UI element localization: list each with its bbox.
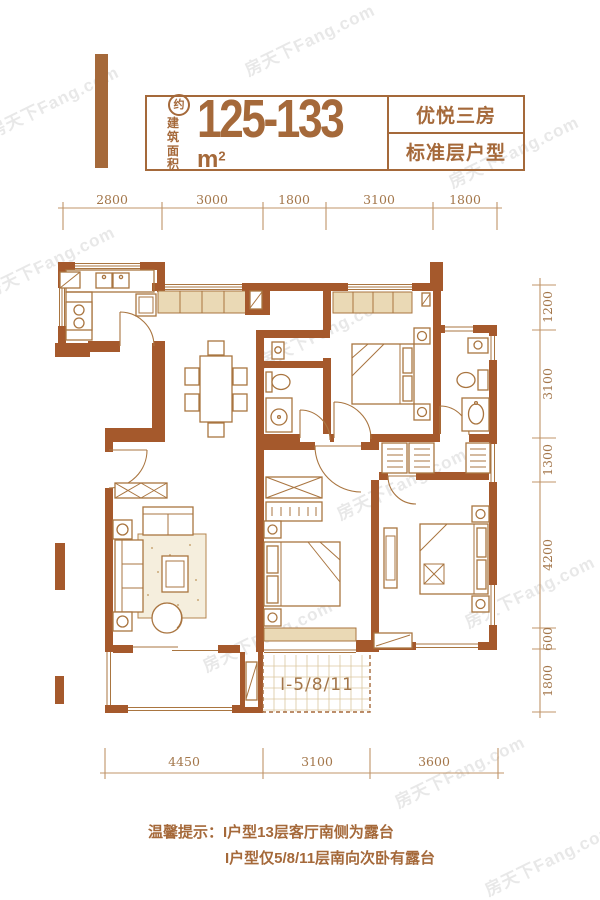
chair [185, 368, 199, 385]
middle-bedroom [264, 477, 356, 641]
right-bedroom [382, 443, 490, 612]
wardrobe [266, 502, 322, 521]
svg-text:4450: 4450 [168, 754, 200, 769]
svg-text:3100: 3100 [540, 368, 555, 400]
master-bedroom-door [334, 402, 371, 439]
svg-text:3100: 3100 [363, 192, 395, 207]
sofa-three-seat [115, 540, 143, 612]
vanity [462, 398, 489, 431]
nightstand [472, 596, 489, 612]
svg-text:3600: 3600 [418, 754, 450, 769]
svg-text:600: 600 [540, 627, 555, 651]
nightstand [414, 328, 430, 344]
bay-window-sill [264, 628, 356, 641]
nightstand [414, 404, 430, 420]
laundry-basin [272, 342, 284, 359]
svg-text:3000: 3000 [196, 192, 228, 207]
svg-text:4200: 4200 [540, 539, 555, 571]
chair [233, 368, 247, 385]
nightstand [472, 506, 489, 522]
bed [352, 344, 414, 404]
wardrobe [409, 443, 434, 473]
side-table [113, 520, 132, 539]
tv-cabinet [115, 483, 167, 498]
toilet-tank [266, 372, 272, 392]
floorplan-svg: 2800 3000 1800 3100 1800 1200 3100 1300 … [0, 0, 600, 900]
tips-line1: 温馨提示：I户型13层客厅南侧为露台 [148, 820, 435, 846]
dining-table [200, 356, 232, 422]
tips-line2: I户型仅5/8/11层南向次卧有露台 [148, 846, 435, 872]
ac-platform [55, 676, 64, 704]
ac-platform [55, 543, 65, 590]
chair [208, 341, 224, 355]
svg-text:1300: 1300 [540, 444, 555, 476]
toilet [272, 375, 290, 390]
nightstand [264, 521, 281, 538]
svg-text:1800: 1800 [278, 192, 310, 207]
tips: 温馨提示：I户型13层客厅南侧为露台 I户型仅5/8/11层南向次卧有露台 [148, 820, 435, 871]
entry-door [109, 450, 147, 488]
terrace: I-5/8/11 [263, 655, 370, 712]
floorplan-page: 房天下Fang.com 房天下Fang.com 房天下Fang.com 房天下F… [0, 0, 600, 900]
kitchen [60, 270, 156, 340]
dimension-chain-top: 2800 3000 1800 3100 1800 [58, 192, 502, 230]
toilet [457, 373, 475, 388]
washbasin [468, 338, 488, 353]
unit-label: I-5/8/11 [280, 675, 354, 695]
svg-text:1200: 1200 [540, 291, 555, 323]
dimension-chain-right: 1200 3100 1300 4200 600 1800 [532, 278, 556, 718]
master-bedroom [333, 292, 430, 420]
dining-area [185, 341, 247, 437]
sliding-door [133, 647, 218, 651]
svg-text:1800: 1800 [540, 665, 555, 697]
bed [264, 542, 340, 606]
nightstand [264, 609, 281, 626]
main-bathroom [266, 342, 292, 432]
chair [185, 394, 199, 411]
living-room [113, 483, 206, 633]
ensuite-bathroom [457, 338, 489, 431]
right-bedroom-door [388, 476, 416, 504]
dimension-chain-bottom: 4450 3100 3600 [100, 748, 504, 779]
side-table [113, 612, 132, 631]
kitchen-door [120, 312, 154, 346]
toilet-tank [478, 370, 488, 390]
svg-text:2800: 2800 [96, 192, 128, 207]
chair [208, 423, 224, 437]
wardrobe [466, 443, 490, 473]
svg-text:3100: 3100 [301, 754, 333, 769]
wardrobe [382, 443, 407, 473]
stove [66, 302, 92, 330]
svg-text:1800: 1800 [449, 192, 481, 207]
chair [233, 394, 247, 411]
